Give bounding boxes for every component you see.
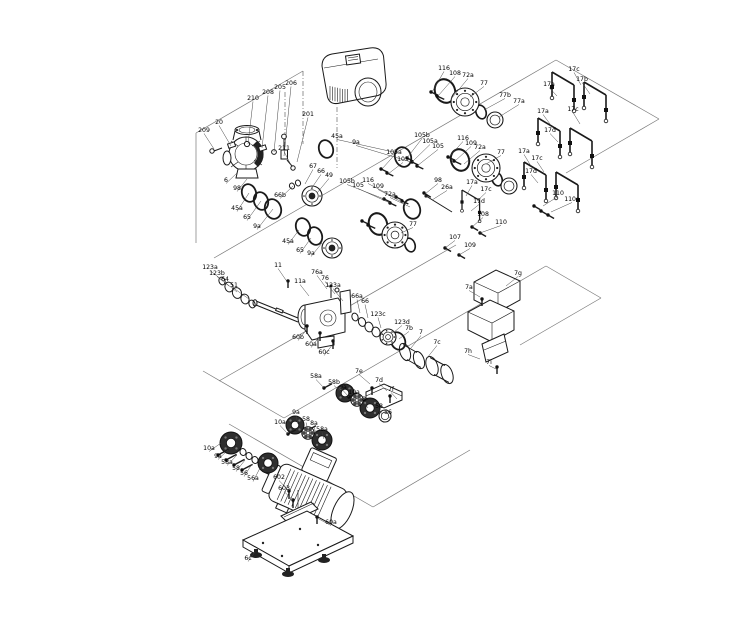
part-label: 20 bbox=[215, 119, 223, 126]
part-label: 77 bbox=[409, 221, 417, 228]
part-label: 6 bbox=[224, 177, 228, 184]
part-label: 72a bbox=[462, 72, 474, 79]
part-label: 72a bbox=[474, 144, 486, 151]
coupling-star-insert bbox=[302, 427, 314, 439]
leader-line bbox=[378, 318, 381, 329]
part-label: 17c bbox=[568, 66, 580, 73]
part-callout: 58a bbox=[310, 373, 324, 388]
part-label: 109 bbox=[464, 242, 476, 249]
leader-line bbox=[432, 191, 447, 201]
leader-line bbox=[274, 91, 280, 153]
part-label: 17a bbox=[518, 148, 530, 155]
part-label: 66 bbox=[361, 298, 369, 305]
stage-flange-disc bbox=[487, 112, 503, 128]
vent-pipe bbox=[568, 128, 594, 169]
part-label: 206 bbox=[285, 80, 297, 87]
leader-line bbox=[300, 285, 309, 297]
coupling-hub bbox=[220, 432, 242, 454]
part-label: 17b bbox=[576, 76, 588, 83]
screw bbox=[457, 253, 465, 258]
part-callout: 72a bbox=[384, 191, 410, 207]
part-label: 45a bbox=[282, 238, 294, 245]
o-ring bbox=[295, 179, 302, 186]
screw bbox=[410, 160, 418, 165]
part-label: 211 bbox=[278, 145, 290, 152]
screw bbox=[532, 204, 540, 209]
part-label: 7a bbox=[465, 284, 473, 291]
part-callout: 17d bbox=[471, 198, 485, 211]
part-callout: 109 bbox=[459, 242, 476, 255]
part-label: 7i bbox=[486, 359, 492, 366]
part-label: 9a bbox=[253, 223, 261, 230]
leader-line bbox=[305, 170, 313, 185]
part-label: 66 bbox=[317, 168, 325, 175]
leader-line bbox=[316, 380, 324, 389]
part-callout: 20 bbox=[215, 119, 231, 146]
leader-line bbox=[359, 375, 370, 385]
part-label: 123a bbox=[325, 282, 341, 289]
part-label: 49 bbox=[325, 172, 333, 179]
impeller-disc bbox=[302, 186, 322, 206]
part-label: 67 bbox=[309, 163, 317, 170]
part-label: 60b bbox=[292, 334, 304, 341]
part-callout: 49 bbox=[317, 172, 333, 193]
screw bbox=[415, 164, 423, 169]
part-label: 602 bbox=[273, 474, 285, 481]
screw bbox=[379, 167, 387, 172]
leader-line bbox=[262, 96, 268, 149]
leader-line bbox=[489, 366, 496, 370]
part-label: 17d bbox=[544, 127, 556, 134]
part-callout: 45a bbox=[282, 230, 299, 245]
part-callout: 108 bbox=[472, 211, 489, 227]
part-label: 56a bbox=[247, 475, 259, 482]
vent-pipe bbox=[536, 118, 562, 159]
leader-line bbox=[411, 336, 421, 349]
leader-line bbox=[219, 126, 231, 147]
part-label: 7 bbox=[419, 329, 423, 336]
screw bbox=[452, 159, 461, 164]
part-callout: 11a bbox=[294, 278, 309, 296]
part-callout: 208 bbox=[262, 89, 274, 148]
part-label: 210 bbox=[247, 95, 259, 102]
part-label: 107 bbox=[449, 234, 461, 241]
motor-controller-unit bbox=[322, 48, 386, 106]
o-ring bbox=[289, 182, 296, 189]
part-callout: 17d bbox=[525, 168, 538, 183]
part-label: 77 bbox=[497, 149, 505, 156]
leader-line bbox=[531, 175, 538, 184]
stage-flange-disc bbox=[382, 222, 408, 248]
part-label: 17c bbox=[567, 106, 579, 113]
leader-line bbox=[357, 300, 360, 314]
part-callout: 17a bbox=[543, 81, 557, 96]
part-callout: 201 bbox=[297, 111, 314, 162]
part-label: 58 bbox=[375, 403, 383, 410]
part-label: 60a bbox=[305, 341, 317, 348]
part-label: 109 bbox=[372, 183, 384, 190]
part-label: 17c bbox=[531, 155, 543, 162]
leader-line bbox=[472, 218, 483, 228]
part-label: 77b bbox=[499, 92, 511, 99]
stage-flange-disc bbox=[451, 88, 479, 116]
part-callout: 7i bbox=[486, 359, 496, 369]
part-label: 76 bbox=[321, 275, 329, 282]
o-ring bbox=[401, 197, 423, 221]
part-callout: 7c bbox=[427, 339, 441, 358]
part-label: 123c bbox=[370, 311, 386, 318]
part-label: 110a bbox=[564, 196, 580, 203]
part-callout: 209 bbox=[198, 127, 214, 149]
part-callout: 7e bbox=[355, 368, 370, 384]
leader-line bbox=[297, 118, 308, 163]
part-callout: 66 bbox=[361, 298, 369, 318]
part-label: 7g bbox=[514, 270, 522, 277]
stage-flange-disc bbox=[501, 178, 517, 194]
impeller-disc bbox=[322, 238, 342, 258]
part-label: 9a bbox=[292, 409, 300, 416]
part-callout: 77b bbox=[484, 92, 511, 110]
leader-line bbox=[427, 346, 437, 359]
part-callout: 98 bbox=[425, 177, 442, 194]
exploded-parts-diagram-page: 2092021020820520620121169866b45a659a6766… bbox=[0, 0, 752, 632]
part-callout: 10a bbox=[203, 443, 221, 452]
part-label: 7h bbox=[464, 348, 472, 355]
part-label: 110 bbox=[552, 190, 564, 197]
part-label: 9a bbox=[352, 139, 360, 146]
part-label: 60c bbox=[318, 349, 330, 356]
part-label: 11a bbox=[294, 278, 306, 285]
part-label: 77 bbox=[480, 80, 488, 87]
frame-lines bbox=[196, 60, 659, 507]
part-label: 9a bbox=[307, 250, 315, 257]
part-label: 9a bbox=[339, 384, 347, 391]
leader-line bbox=[407, 139, 422, 159]
part-label: 17a bbox=[543, 81, 555, 88]
part-callout: 7h bbox=[464, 348, 480, 359]
pump-housing bbox=[223, 126, 264, 179]
part-label: 201 bbox=[302, 111, 314, 118]
part-label: 17d bbox=[525, 168, 537, 175]
screw bbox=[388, 201, 396, 206]
part-callout: 45a bbox=[231, 193, 249, 212]
pump-exploded-diagram: 2092021020820520620121169866b45a659a6766… bbox=[0, 0, 752, 632]
part-label: 108 bbox=[449, 70, 461, 77]
leader-line bbox=[425, 184, 438, 195]
part-label: 66b bbox=[274, 192, 286, 199]
leader-line bbox=[445, 241, 455, 249]
part-callout: 6 bbox=[224, 173, 237, 184]
coupling-hub bbox=[258, 453, 278, 473]
part-label: 110 bbox=[495, 219, 507, 226]
part-label: 8 bbox=[362, 396, 366, 403]
leader-line bbox=[459, 249, 470, 256]
part-callout: 17c bbox=[567, 106, 580, 124]
o-ring bbox=[294, 216, 313, 237]
part-callout: 26a bbox=[432, 184, 453, 200]
part-callout: 56a bbox=[247, 468, 260, 482]
part-label: 98 bbox=[434, 177, 442, 184]
part-callout: 11 bbox=[274, 262, 288, 283]
part-label: 64 bbox=[221, 276, 229, 283]
part-label: 7b bbox=[405, 325, 413, 332]
part-label: 10a bbox=[348, 389, 360, 396]
part-label: 51 bbox=[230, 282, 238, 289]
part-label: 17d bbox=[473, 198, 485, 205]
leader-line bbox=[317, 179, 329, 194]
part-label: 58a bbox=[316, 426, 328, 433]
part-label: 17a bbox=[537, 108, 549, 115]
part-label: 7c bbox=[433, 339, 441, 346]
part-label: 11 bbox=[274, 262, 282, 269]
part-label: 17c bbox=[480, 186, 492, 193]
screw bbox=[470, 225, 478, 230]
ball-bearing bbox=[380, 329, 396, 345]
leader-line bbox=[417, 150, 438, 167]
sleeve-parts bbox=[397, 342, 455, 385]
part-label: 58 bbox=[302, 416, 310, 423]
part-callout: 107 bbox=[445, 234, 461, 248]
part-callout: 65 bbox=[243, 201, 261, 221]
leader-line bbox=[551, 203, 572, 213]
leader-line bbox=[278, 269, 288, 284]
part-label: 65 bbox=[243, 214, 251, 221]
part-label: 108 bbox=[477, 211, 489, 218]
leader-line bbox=[480, 226, 501, 234]
part-label: 603 bbox=[278, 485, 290, 492]
part-label: 56 bbox=[384, 409, 392, 416]
screw bbox=[539, 209, 547, 214]
part-callout: 60b bbox=[292, 329, 307, 341]
screw bbox=[495, 365, 498, 374]
part-callout: 105 bbox=[417, 143, 444, 166]
leader-line bbox=[499, 105, 519, 118]
part-label: 26a bbox=[441, 184, 453, 191]
leader-line bbox=[412, 145, 430, 163]
part-callout: 7b bbox=[399, 325, 413, 339]
part-label: 98 bbox=[233, 185, 241, 192]
leader-line bbox=[204, 134, 214, 150]
part-label: 105 bbox=[397, 156, 409, 163]
coupling-guard-halves bbox=[468, 270, 520, 362]
leader-line bbox=[388, 163, 403, 175]
screw bbox=[286, 279, 289, 288]
part-label: 6c bbox=[244, 555, 252, 562]
part-callout: 77a bbox=[499, 98, 525, 117]
part-label: 10a bbox=[203, 445, 215, 452]
screw bbox=[546, 213, 554, 218]
part-callout: 110 bbox=[480, 219, 507, 233]
part-label: 7f bbox=[388, 386, 395, 393]
part-label: 77a bbox=[513, 98, 525, 105]
part-label: 72a bbox=[384, 191, 396, 198]
o-ring bbox=[351, 312, 359, 322]
screw bbox=[385, 171, 393, 176]
leader-line bbox=[468, 355, 480, 360]
leader-line bbox=[550, 134, 558, 143]
part-label: 58 bbox=[232, 465, 240, 472]
leader-line bbox=[432, 72, 444, 93]
part-label: 58a bbox=[310, 373, 322, 380]
part-callout: 105a bbox=[412, 138, 438, 162]
screw bbox=[435, 94, 444, 99]
part-label: 17a bbox=[466, 179, 478, 186]
part-label: 65 bbox=[296, 247, 304, 254]
part-callout: 9a bbox=[253, 209, 273, 230]
part-label: 45a bbox=[231, 205, 243, 212]
stay-bolt bbox=[424, 194, 452, 212]
part-label: 105 bbox=[432, 143, 444, 150]
leader-line bbox=[573, 113, 580, 125]
part-label: 45a bbox=[331, 133, 343, 140]
part-label: 7d bbox=[375, 377, 383, 384]
o-ring bbox=[317, 138, 336, 159]
part-label: 208 bbox=[262, 89, 274, 96]
callout-layer: 2092021020820520620121169866b45a659a6766… bbox=[198, 65, 590, 562]
part-label: 10a bbox=[274, 419, 286, 426]
part-label: 209 bbox=[198, 127, 210, 134]
leader-line bbox=[365, 305, 368, 319]
part-label: 60a bbox=[325, 519, 337, 526]
part-label: 7e bbox=[355, 368, 363, 375]
part-label: 105a bbox=[386, 149, 402, 156]
part-callout: 67 bbox=[305, 163, 317, 184]
o-ring bbox=[364, 321, 375, 333]
leader-line bbox=[234, 289, 249, 300]
